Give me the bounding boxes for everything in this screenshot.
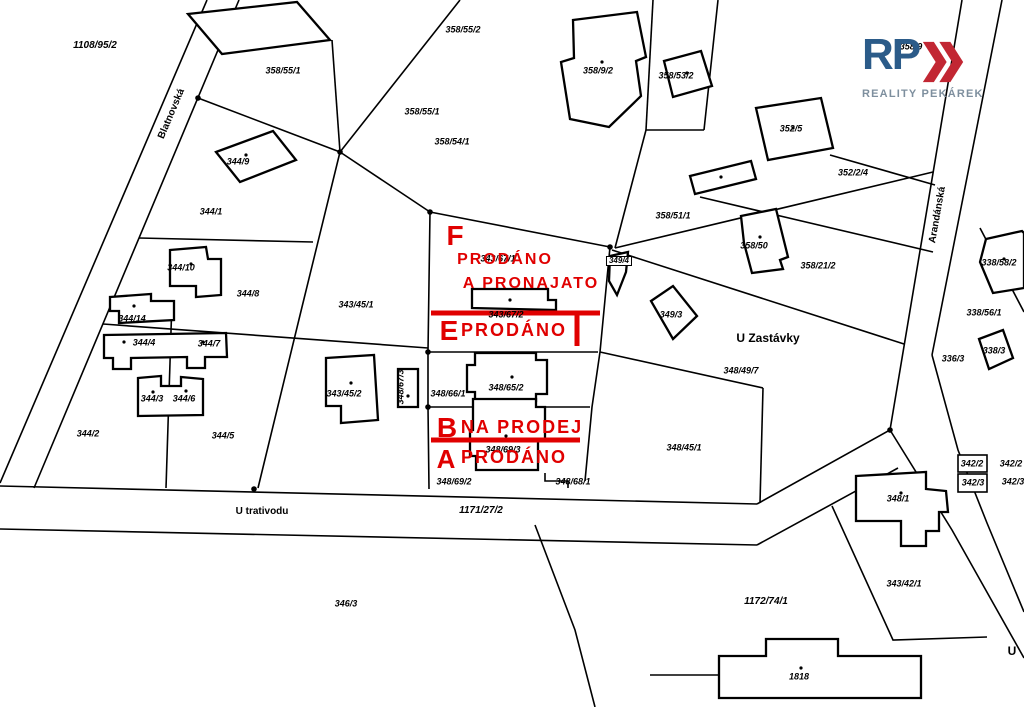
map-geometry (0, 0, 1024, 707)
logo-company-name: REALITY PEKÁREK (862, 88, 1012, 100)
cadastral-map-page: { "colors":{"red":"#e00000","logo_blue":… (0, 0, 1024, 707)
buildings (104, 2, 1024, 698)
logo-rp-text: RP (862, 34, 919, 76)
logo-chevrons-icon (921, 37, 965, 87)
realty-logo: RP REALITY PEKÁREK (862, 34, 1012, 100)
logo-row: RP (862, 34, 1012, 87)
